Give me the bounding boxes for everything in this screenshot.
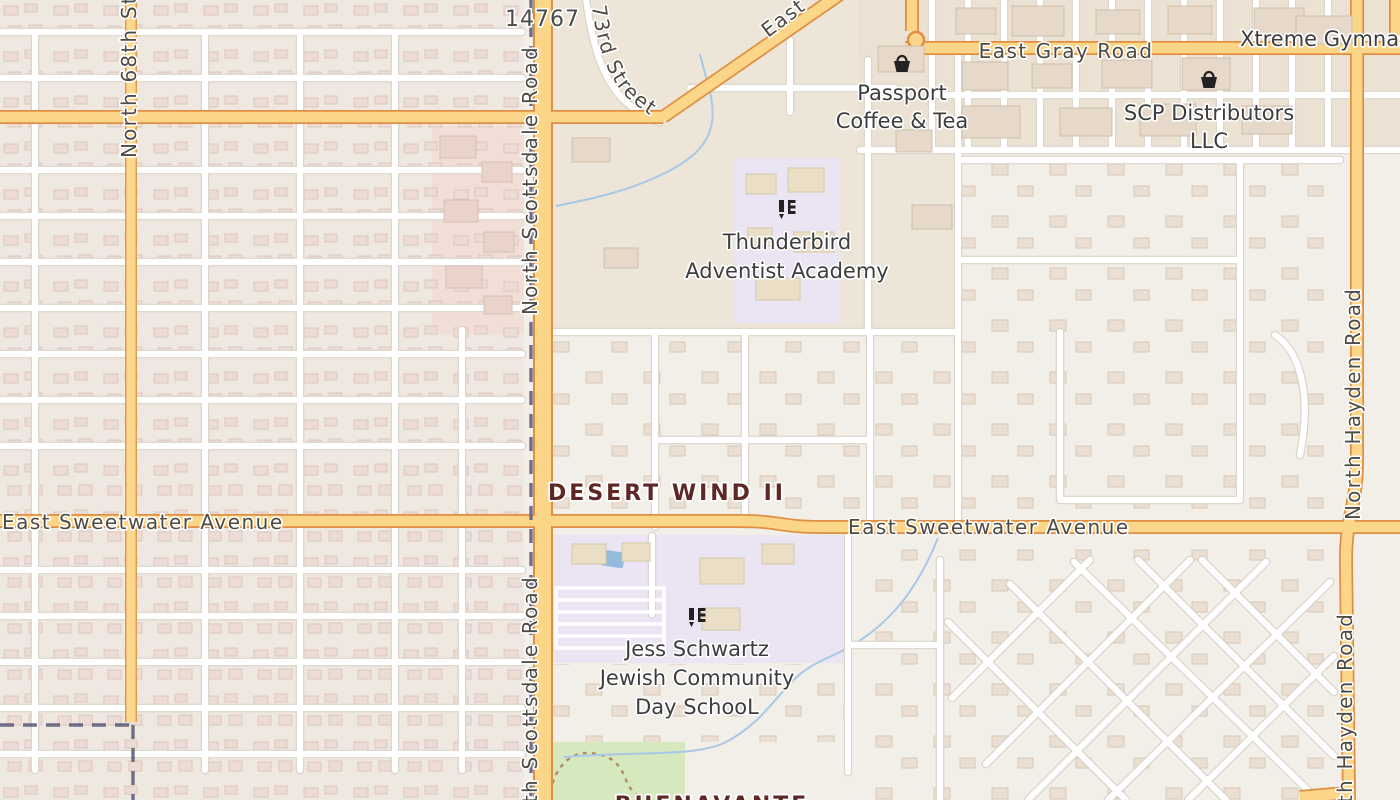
svg-text:Jess Schwartz: Jess Schwartz bbox=[623, 637, 769, 661]
road-label-sweetwater-east: East Sweetwater Avenue bbox=[848, 515, 1130, 539]
svg-text:Day SchooL: Day SchooL bbox=[635, 695, 759, 719]
housenumber-label: 14767 bbox=[505, 7, 580, 32]
road-label-east-gray: East Gray Road bbox=[979, 39, 1154, 63]
road-label-scottsdale-top: North Scottsdale Road bbox=[518, 45, 542, 315]
road-label-scottsdale-bottom: North Scottsdale Road bbox=[518, 575, 542, 800]
road-label-hayden-bottom: North Hayden Road bbox=[1333, 612, 1357, 800]
svg-text:Adventist Academy: Adventist Academy bbox=[685, 259, 888, 283]
map-viewport[interactable]: 14767 73rd Street East East Gray Road No… bbox=[0, 0, 1400, 800]
place-label-desert-wind: DESERT WIND II bbox=[548, 481, 786, 506]
park-layer bbox=[545, 742, 685, 800]
svg-text:SCP Distributors: SCP Distributors bbox=[1124, 101, 1294, 125]
svg-text:LLC: LLC bbox=[1190, 129, 1228, 153]
place-label-buenavante: BUENAVANTE bbox=[615, 793, 810, 800]
road-label-hayden-top: North Hayden Road bbox=[1341, 287, 1365, 520]
svg-text:Thunderbird: Thunderbird bbox=[722, 230, 851, 254]
road-label-sweetwater-west: East Sweetwater Avenue bbox=[2, 510, 284, 534]
park-area bbox=[545, 742, 685, 800]
road-label-68th-street: North 68th Street bbox=[117, 0, 141, 158]
poi-label-xtreme: Xtreme Gymnast bbox=[1240, 27, 1400, 51]
svg-text:Coffee & Tea: Coffee & Tea bbox=[836, 109, 969, 133]
svg-text:Jewish Community: Jewish Community bbox=[598, 666, 795, 690]
map-canvas[interactable]: 14767 73rd Street East East Gray Road No… bbox=[0, 0, 1400, 800]
svg-text:Passport: Passport bbox=[857, 81, 947, 105]
